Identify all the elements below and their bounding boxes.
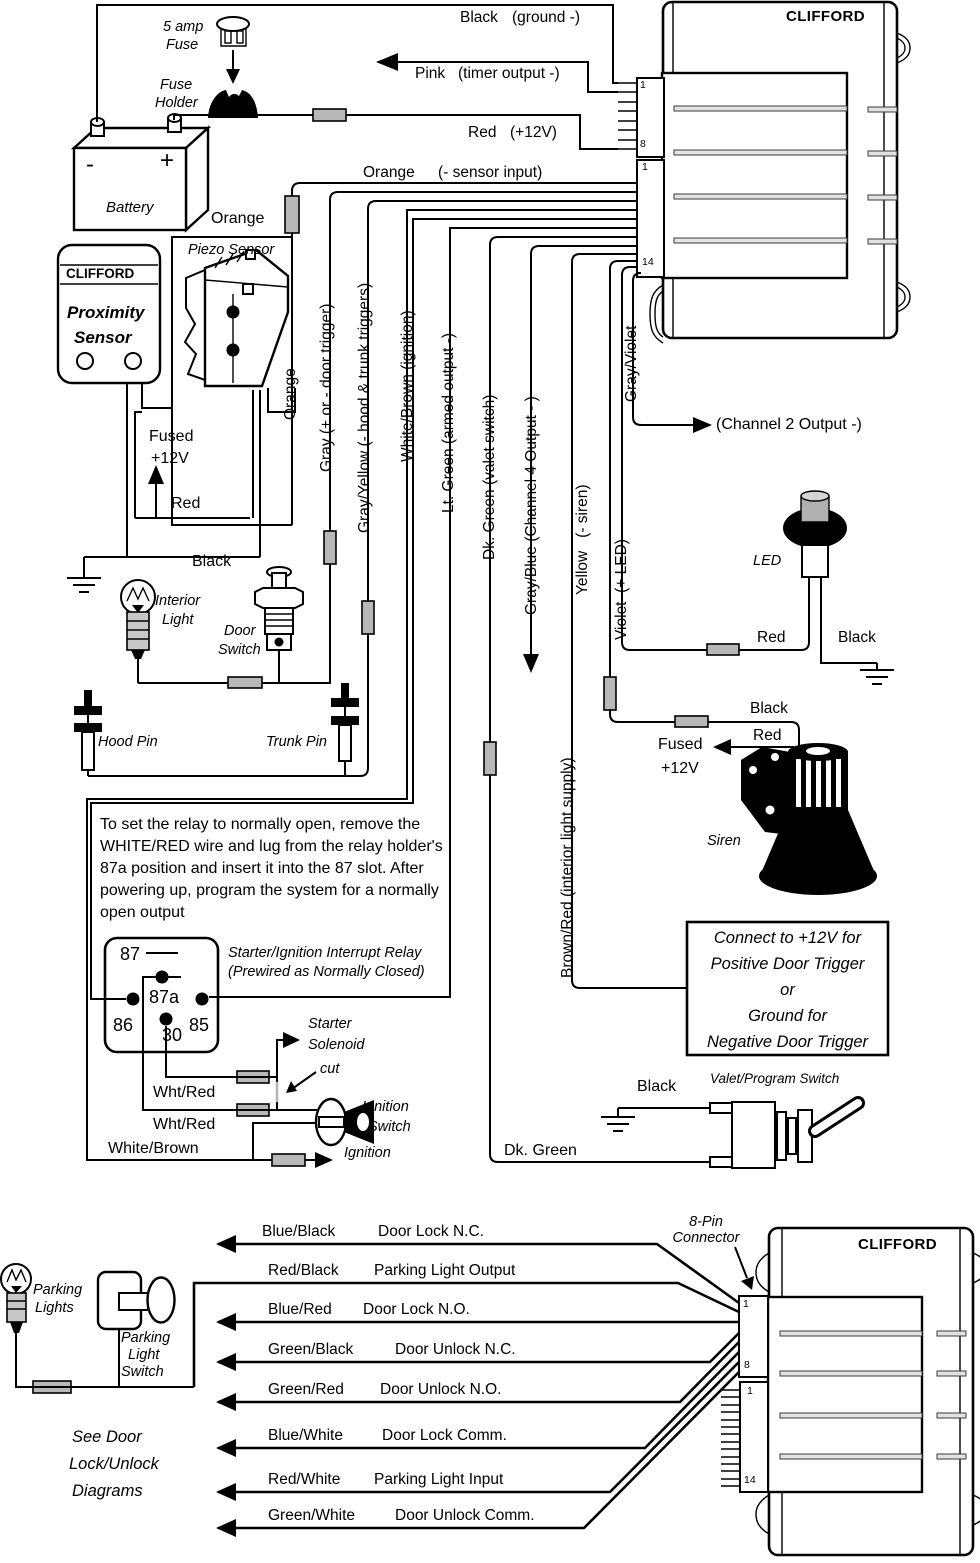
wire-led-black [821,577,877,663]
row-desc-label: Door Unlock N.C. [395,1341,516,1358]
wire-label-orange: Orange [363,164,415,181]
wire-label-orange-splice: Orange [211,210,264,228]
door-switch-label: Door [224,624,255,640]
diagram-linework [0,0,980,1563]
relay-note-line: open output [100,904,185,922]
wire-desc-orange: (- sensor input) [438,164,542,181]
parking-switch-label: Switch [121,1365,164,1381]
fuse-holder-icon [208,90,258,118]
battery-label: Battery [106,200,154,217]
fuse-icon [217,17,249,84]
relay-note-line: WHITE/RED wire and lug from the relay ho… [100,838,443,856]
valet-black-label: Black [637,1078,676,1096]
fuse-label: Fuse [166,38,198,54]
parking-light-circuit [1,1264,194,1387]
trunk-pin-label: Trunk Pin [266,735,327,751]
siren-label: Siren [707,834,741,850]
relay-caption: Starter/Ignition Interrupt Relay [228,946,421,962]
down-arrowhead [226,69,240,84]
row-wire-label: Green/Red [268,1381,344,1398]
prox-label: Proximity [67,304,144,323]
wire-label-lt-green: Lt. Green (armed output -) [440,333,458,513]
wire-label-pink: Pink [415,65,445,82]
prox-label: Sensor [74,329,132,348]
fused-12v-label: +12V [151,450,189,468]
fuse-holder-label: Holder [155,96,198,112]
cut-label: cut [320,1062,339,1078]
connector-8pin-comb [618,83,637,149]
red-label: Red [171,495,200,513]
wire-label-gray-blue: Gray/Blue (Channel 4 Output - ) [523,396,541,615]
down-arrowhead [523,654,539,673]
wire-label-gray-yellow: Gray/Yellow (- hood & trunk triggers) [356,283,374,533]
interior-light-label: Light [162,613,193,629]
siren-red-label: Red [753,727,781,744]
relay-pin-86: 86 [113,1016,133,1036]
wire-dk-green [490,237,712,1162]
note-box-line: Negative Door Trigger [688,1033,887,1051]
hood-pin-icon [74,690,102,776]
parking-light-switch-icon [98,1272,175,1329]
siren-black-label: Black [750,700,788,717]
trunk-pin-icon [331,683,359,776]
prox-plug [142,383,172,408]
left-arrowhead [216,1393,236,1411]
connector-pointer [735,1247,747,1278]
wire-desc-red: (+12V) [510,124,557,141]
starter-solenoid-label: Starter [308,1017,352,1033]
wire-label-gray-violet: Gray/Violet [623,326,641,402]
relay-note-line: powering up, program the system for a no… [100,882,439,900]
row-desc-label: Door Unlock Comm. [395,1507,535,1524]
cut-pointer [292,1072,316,1089]
row-desc-label: Door Lock N.O. [363,1301,470,1318]
wire-label-violet: Violet (+ LED) [613,539,631,640]
wire-label-red: Red [468,124,496,141]
wire-label-gray: Gray (+ or - door trigger) [318,304,336,472]
parking-switch-label: Parking [121,1331,170,1347]
right-arrowhead [315,1152,333,1168]
relay-pin-30: 30 [162,1026,182,1046]
pin-number: 1 [743,1299,749,1311]
battery-pos: + [160,148,174,174]
led-black-label: Black [838,629,876,646]
fused-12v-label: Fused [658,736,702,754]
ground-icon [67,557,101,592]
alarm-brain-unit [618,2,910,343]
wire-label-channel2: (Channel 2 Output -) [716,416,862,434]
note-box-line: or [688,981,887,999]
row-wire-label: Red/Black [268,1262,339,1279]
parking-switch-label: Light [128,1348,159,1364]
wiring-diagram: CLIFFORD 1 8 1 14 Black (ground -) Pink … [0,0,980,1563]
interior-light-icon [121,580,155,683]
up-arrowhead [148,465,164,484]
relay-note-line: 87a position and insert it into the 87 s… [100,860,424,878]
parking-lights-label: Parking [33,1283,82,1299]
dk-green-label: Dk. Green [504,1142,577,1160]
fuse-label: 5 amp [163,20,203,36]
relay-note-line: To set the relay to normally open, remov… [100,816,420,834]
pin-number: 14 [744,1475,756,1487]
row-desc-label: Parking Light Output [374,1262,515,1279]
see-door-label: Lock/Unlock [69,1455,159,1473]
case-clip-icon [897,33,910,63]
row-wire-label: Blue/Red [268,1301,332,1318]
case-clip-icon [756,1495,769,1534]
parking-light-bulb-icon [1,1264,31,1333]
clifford-logo: CLIFFORD [786,9,865,26]
right-arrowhead [693,417,712,433]
wire-desc-pink: (timer output -) [458,65,560,82]
led-label: LED [753,554,781,570]
led-red-label: Red [757,629,785,646]
ground-icon [601,1108,635,1131]
valet-switch-label: Valet/Program Switch [710,1072,839,1087]
clifford-logo: CLIFFORD [858,1237,937,1254]
wire-label-white-brown: White/Brown (ignition) [399,310,417,462]
8pin-label: 8-Pin [661,1215,751,1231]
fused-12v-label: Fused [149,428,193,446]
ignition-switch-label: Switch [368,1120,411,1136]
pin-number: 1 [640,80,646,92]
left-arrowhead [216,1439,236,1457]
left-arrowhead [376,53,398,71]
prox-brand: CLIFFORD [66,267,134,282]
fuse-holder-label: Fuse [160,78,192,94]
case-clip-icon [897,282,910,312]
row-wire-label: Green/Black [268,1341,353,1358]
note-box-line: Ground for [688,1007,887,1025]
door-switch-label: Switch [218,643,261,659]
door-switch-icon [255,567,303,683]
row-wire-label: Blue/White [268,1427,343,1444]
whitebrown-label: White/Brown [108,1140,199,1158]
wire-label-brown-red: Brown/Red (interior light supply) [559,757,577,978]
connector-14pin-comb [721,1390,740,1486]
ground-icon [860,663,894,684]
pin-number: 1 [747,1386,753,1398]
siren-icon [713,739,877,895]
pin-number: 14 [642,257,654,269]
wire-red-black [194,1283,739,1387]
wire-label-black: Black [460,9,498,26]
note-box-line: Connect to +12V for [688,929,887,947]
note-box-line: Positive Door Trigger [688,955,887,973]
relay-pin-87a: 87a [149,988,179,1008]
wire-desc-black: (ground -) [512,9,580,26]
row-desc-label: Door Unlock N.O. [380,1381,501,1398]
piezo-label: Piezo Sensor [188,243,274,259]
battery-neg: - [86,152,94,178]
left-arrowhead [216,1235,236,1253]
left-arrowhead [713,739,731,755]
sensor-wiring [67,383,295,592]
valet-switch-icon [601,1102,858,1168]
wire-label-orange-vert: Orange [282,368,300,420]
pin-number: 1 [642,162,648,174]
row-desc-label: Door Lock N.C. [378,1223,484,1240]
wire-orange [292,183,637,525]
ignition-switch-label: Ignition [362,1100,409,1116]
left-arrowhead [216,1353,236,1371]
case-clip-icon [650,285,663,343]
left-arrowhead [216,1519,236,1537]
row-wire-label: Red/White [268,1471,340,1488]
black-label: Black [192,553,231,571]
case-clip-icon [756,1253,769,1292]
relay-pin-87: 87 [120,945,140,965]
down-arrowhead [741,1276,754,1290]
see-door-label: Diagrams [72,1482,143,1500]
fused-12v-label: +12V [661,760,699,778]
pin-number: 8 [744,1360,750,1372]
piezo-sensor [185,249,288,386]
see-door-label: See Door [72,1428,142,1446]
starter-solenoid-label: Solenoid [308,1038,364,1054]
row-desc-label: Door Lock Comm. [382,1427,507,1444]
8pin-label: Connector [661,1231,751,1247]
left-arrowhead [216,1483,236,1501]
doorlock-unit [721,1228,980,1555]
hood-pin-label: Hood Pin [98,735,158,751]
row-wire-label: Blue/Black [262,1223,335,1240]
whtred-label: Wht/Red [153,1116,215,1134]
pin-number: 8 [640,139,646,151]
whtred-label: Wht/Red [153,1084,215,1102]
left-arrowhead [216,1313,236,1331]
row-wire-label: Green/White [268,1507,355,1524]
wire-label-yellow: Yellow (- siren) [574,484,592,595]
interior-light-label: Interior [155,594,200,610]
right-arrowhead [283,1032,300,1048]
row-desc-label: Parking Light Input [374,1471,503,1488]
wire-label-dk-green: Dk. Green (valet switch) [481,395,499,560]
relay-caption: (Prewired as Normally Closed) [228,965,425,981]
ignition-label: Ignition [344,1146,391,1162]
relay-pin-85: 85 [189,1016,209,1036]
parking-lights-label: Lights [35,1301,74,1317]
led-icon [783,491,894,684]
